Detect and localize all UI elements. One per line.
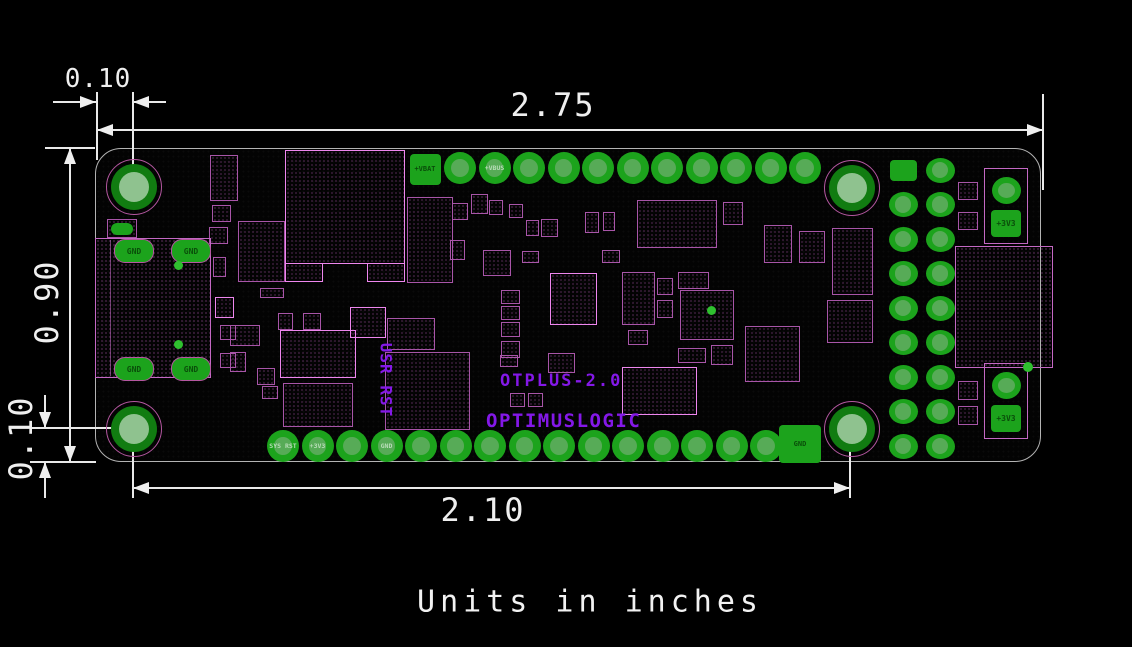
pad-core [932,300,948,316]
header-pad-square: GND [779,425,821,463]
component-outline [262,386,278,399]
pad-core [895,438,911,454]
pad-core [895,300,911,316]
dimension-line [69,148,71,462]
hole-ring [829,165,875,211]
pad-core [796,159,814,177]
pcb-dimension-drawing: GNDGNDGNDGND+3V3+3V3+VBAT+VBUSSYS RST+3V… [0,0,1132,647]
arrowhead-right-icon [834,482,850,494]
hole-core [119,172,149,202]
pad-core [550,437,568,455]
mounting-hole [824,401,880,457]
pad-core [555,159,573,177]
pad-core [451,159,469,177]
pad-core [932,403,948,419]
dim-value-board-width: 2.75 [510,86,595,124]
header-pad: +3V3 [302,430,334,462]
header-pad [889,227,918,252]
header-pad [509,430,541,462]
pad-core [895,369,911,385]
component-outline [278,313,293,330]
component-outline [958,406,978,425]
component-outline [510,393,525,407]
hole-core [119,414,149,444]
pad-core [654,437,672,455]
usb-shield-line [110,240,111,376]
header-pad [681,430,713,462]
pad-core [932,231,948,247]
power-3v3-pad: +3V3 [991,405,1021,432]
arrowhead-left-icon [97,124,113,136]
pad-label: GND [794,440,807,448]
header-pad [543,430,575,462]
header-pad [716,430,748,462]
dim-value-hole-span: 2.10 [440,491,525,529]
pad-core [693,159,711,177]
header-pad [617,152,649,184]
component-outline [452,203,468,220]
component-outline [220,325,236,340]
component-outline [637,200,717,248]
header-pad [889,399,918,424]
arrowhead-up-icon [64,148,76,164]
component-outline [585,212,599,233]
usb-gnd-pad: GND [114,357,154,381]
pad-label: +VBUS [485,164,505,172]
header-pad [889,365,918,390]
right-connector-footprint [955,246,1053,368]
header-pad [926,261,955,286]
pad-core [688,437,706,455]
pad-core [932,162,948,178]
component-outline [764,225,792,263]
units-note: Units in inches [417,585,763,620]
component-outline [526,220,539,236]
arrowhead-left-icon [133,96,149,108]
mounting-hole [106,159,162,215]
arrowhead-down-icon [39,412,51,428]
component-outline [385,352,470,430]
arrowhead-left-icon [133,482,149,494]
dimension-line [97,129,1043,131]
board-name-silkscreen: OTPLUS-2.0 [500,371,622,391]
hole-core [837,414,867,444]
component-outline [723,202,743,225]
pad-core [447,437,465,455]
header-pad [889,330,918,355]
header-pad [444,152,476,184]
component-outline [628,330,648,345]
component-outline [501,322,520,337]
component-outline [958,381,978,400]
dimension-line [133,487,850,489]
header-pad-square [890,160,917,181]
pad-core [998,183,1015,198]
arrowhead-right-icon [1027,124,1043,136]
component-outline [471,194,488,214]
component-outline [407,197,453,283]
pad-label: GND [127,365,141,374]
component-outline [711,345,733,365]
component-outline [212,205,231,222]
component-outline [285,150,405,264]
pad-core [516,437,534,455]
pad-core [895,334,911,350]
header-pad: SYS RST [267,430,299,462]
pad-core [932,196,948,212]
component-outline [489,200,503,215]
header-pad-square: +VBAT [410,154,441,185]
pad-core [589,159,607,177]
manufacturer-silkscreen: OPTIMUSLOGIC [486,410,641,432]
via-dot [707,306,716,315]
component-outline [827,300,873,343]
component-outline [260,288,284,298]
power-group-pad [992,177,1021,204]
header-pad [789,152,821,184]
component-outline [745,326,800,382]
component-outline [500,355,518,367]
power-3v3-pad: +3V3 [991,210,1021,237]
button-labels-silkscreen: USR RST [377,343,396,417]
header-pad [720,152,752,184]
pad-core [619,437,637,455]
pad-core [895,265,911,281]
header-pad [686,152,718,184]
dim-value-board-height: 0.90 [28,259,66,344]
header-pad [647,430,679,462]
header-pad [548,152,580,184]
component-outline [501,306,520,320]
header-pad [513,152,545,184]
header-pad [926,365,955,390]
component-outline [548,353,575,373]
component-outline [509,204,523,218]
usb-gnd-pad: GND [171,357,211,381]
header-pad [926,296,955,321]
component-outline [285,263,323,282]
component-outline [220,353,236,368]
pad-core [757,437,775,455]
component-outline [832,228,873,295]
component-outline [602,250,620,263]
arrowhead-down-icon [64,446,76,462]
header-pad [582,152,614,184]
pad-label: GND [127,247,141,256]
pad-core [727,159,745,177]
pad-core [481,437,499,455]
component-outline [678,272,709,289]
header-pad [750,430,782,462]
pad-core [762,159,780,177]
via-dot [1023,362,1033,372]
pad-core [412,437,430,455]
usb-edge-pad [111,223,133,235]
header-pad [926,227,955,252]
header-pad: +VBUS [479,152,511,184]
pad-core [932,334,948,350]
component-outline [958,212,978,230]
component-outline [799,231,825,263]
usb-gnd-pad: GND [171,239,211,263]
component-outline [238,221,285,282]
pad-core [658,159,676,177]
via-dot [174,261,183,270]
pad-core [624,159,642,177]
header-pad [926,434,955,459]
header-pad [926,399,955,424]
component-outline [657,278,673,295]
component-outline [257,368,275,385]
header-pad [440,430,472,462]
header-pad [405,430,437,462]
component-outline [528,393,543,407]
header-pad [926,192,955,217]
pad-label: +3V3 [310,442,326,450]
component-outline [622,272,655,325]
pad-core [895,403,911,419]
header-pad [889,192,918,217]
component-outline [350,307,386,338]
hole-ring [111,164,157,210]
pad-label: SYS RST [269,442,296,450]
header-pad [889,296,918,321]
extension-line [1042,94,1044,190]
mounting-hole [106,401,162,457]
component-outline [367,263,405,282]
pad-core [895,231,911,247]
pad-label: +3V3 [996,414,1015,423]
component-outline [283,383,353,427]
header-pad [889,434,918,459]
header-pad [651,152,683,184]
arrowhead-right-icon [80,96,96,108]
pad-core [932,438,948,454]
component-outline [215,297,234,318]
pad-label: GND [184,247,198,256]
usb-gnd-pad: GND [114,239,154,263]
component-outline [450,240,465,260]
component-outline [303,313,321,330]
pad-core [932,369,948,385]
pad-label: +3V3 [996,219,1015,228]
pad-label: GND [381,442,393,450]
pad-core [585,437,603,455]
component-outline [210,155,238,201]
component-outline [541,219,558,237]
header-pad [926,330,955,355]
component-outline [483,250,511,276]
header-pad [474,430,506,462]
component-outline [522,251,539,263]
component-outline [680,290,734,340]
pad-core [520,159,538,177]
pad-core [895,196,911,212]
component-outline [280,330,356,378]
component-outline [958,182,978,200]
component-outline [550,273,597,325]
component-outline [213,257,226,277]
header-pad [612,430,644,462]
header-pad [336,430,368,462]
header-pad [578,430,610,462]
pad-core [932,265,948,281]
pad-core [343,437,361,455]
component-outline [622,367,697,415]
component-outline [657,300,673,318]
mounting-hole [824,160,880,216]
dim-value-hole-offset-y: 0.10 [2,395,40,480]
component-outline [209,227,228,244]
hole-core [837,173,867,203]
power-group-pad [992,372,1021,399]
pad-core [723,437,741,455]
header-pad [889,261,918,286]
arrowhead-up-icon [39,462,51,478]
component-outline [501,290,520,304]
hole-ring [111,406,157,452]
dim-value-hole-offset-x: 0.10 [65,64,132,94]
via-dot [174,340,183,349]
pad-label: GND [184,365,198,374]
hole-ring [829,406,875,452]
header-pad [755,152,787,184]
component-outline [678,348,706,363]
pad-label: +VBAT [414,165,435,173]
component-outline [603,212,615,231]
header-pad: GND [371,430,403,462]
header-pad [926,158,955,183]
pad-core [998,378,1015,393]
